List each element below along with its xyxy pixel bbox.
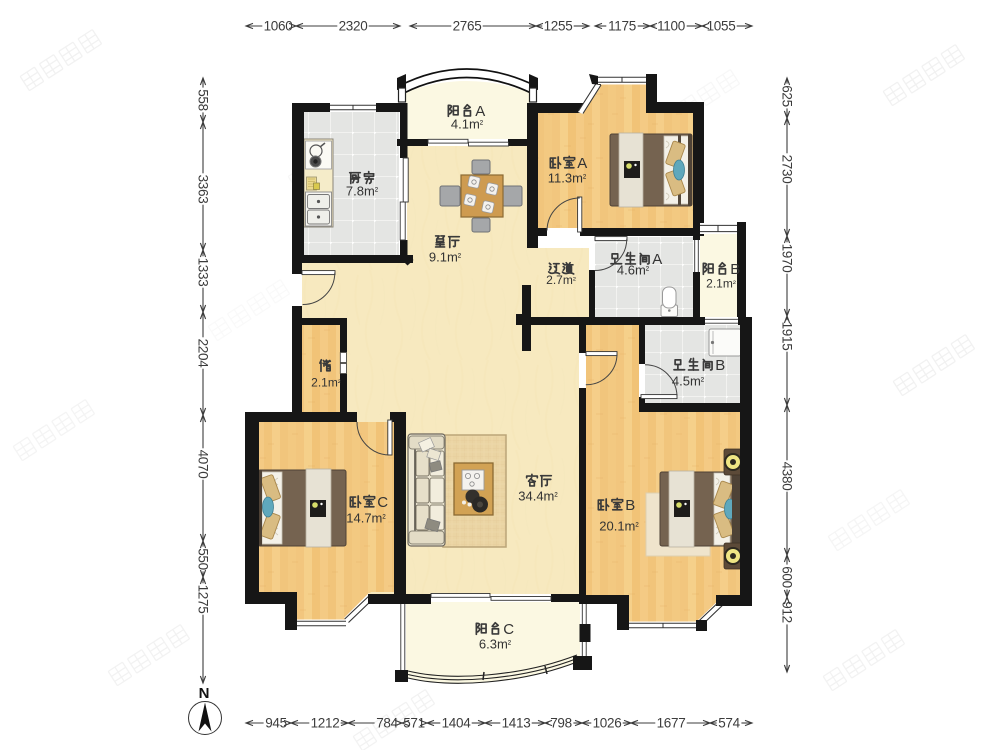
- svg-text:1255: 1255: [544, 19, 573, 34]
- svg-text:1333: 1333: [196, 258, 211, 287]
- svg-text:798: 798: [550, 716, 572, 731]
- svg-text:550: 550: [196, 548, 211, 570]
- svg-text:1413: 1413: [502, 716, 531, 731]
- svg-text:7.8m²: 7.8m²: [346, 184, 379, 199]
- svg-text:C: C: [377, 494, 388, 511]
- svg-text:11.3m²: 11.3m²: [548, 171, 587, 186]
- svg-text:1915: 1915: [780, 322, 795, 351]
- svg-text:B: B: [625, 497, 635, 514]
- svg-text:625: 625: [780, 85, 795, 107]
- svg-text:571: 571: [403, 716, 425, 731]
- svg-text:1055: 1055: [707, 19, 736, 34]
- svg-text:784: 784: [376, 716, 398, 731]
- svg-text:600: 600: [780, 566, 795, 588]
- svg-text:1175: 1175: [608, 19, 636, 34]
- svg-text:558: 558: [196, 89, 211, 111]
- svg-text:4.5m²: 4.5m²: [672, 374, 705, 389]
- svg-text:574: 574: [718, 716, 740, 731]
- svg-text:B: B: [715, 357, 725, 374]
- svg-text:1060: 1060: [264, 19, 293, 34]
- svg-text:2204: 2204: [196, 339, 211, 369]
- svg-text:912: 912: [780, 601, 795, 623]
- svg-text:34.4m²: 34.4m²: [518, 489, 558, 504]
- svg-text:1275: 1275: [196, 585, 211, 614]
- svg-text:4.6m²: 4.6m²: [617, 263, 650, 278]
- svg-text:2.7m²: 2.7m²: [546, 273, 576, 287]
- svg-text:6.3m²: 6.3m²: [479, 637, 512, 652]
- svg-text:2.1m²: 2.1m²: [311, 376, 341, 390]
- svg-text:2730: 2730: [780, 155, 795, 184]
- svg-text:1212: 1212: [311, 716, 340, 731]
- svg-text:4380: 4380: [780, 462, 795, 491]
- svg-text:20.1m²: 20.1m²: [599, 519, 639, 534]
- svg-text:1026: 1026: [593, 716, 622, 731]
- svg-text:2320: 2320: [339, 19, 368, 34]
- svg-text:B: B: [730, 261, 740, 278]
- svg-text:N: N: [199, 685, 210, 702]
- svg-text:A: A: [577, 155, 587, 172]
- svg-text:4070: 4070: [196, 450, 211, 479]
- svg-text:3363: 3363: [196, 175, 211, 204]
- svg-text:1404: 1404: [442, 716, 472, 731]
- svg-text:C: C: [503, 621, 514, 638]
- svg-text:1970: 1970: [780, 244, 795, 273]
- svg-text:1100: 1100: [657, 19, 685, 34]
- svg-text:1677: 1677: [657, 716, 686, 731]
- svg-text:2.1m²: 2.1m²: [706, 277, 736, 291]
- svg-text:4.1m²: 4.1m²: [451, 117, 484, 132]
- svg-text:A: A: [652, 251, 662, 268]
- svg-text:9.1m²: 9.1m²: [429, 250, 462, 265]
- svg-text:945: 945: [265, 716, 287, 731]
- svg-text:14.7m²: 14.7m²: [346, 511, 386, 526]
- svg-text:2765: 2765: [453, 19, 482, 34]
